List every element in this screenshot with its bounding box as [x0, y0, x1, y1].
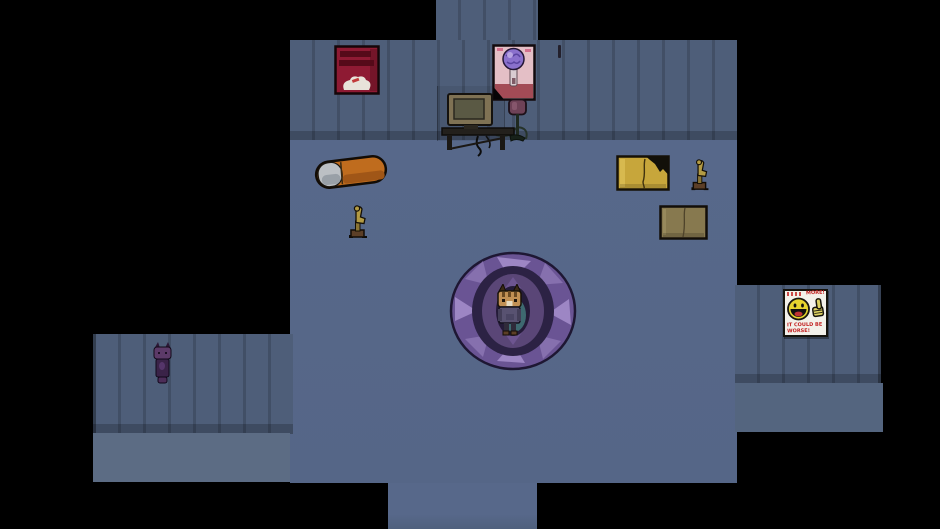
- yellow-table-art: [616, 155, 670, 191]
- right-wing-floor: [735, 383, 883, 432]
- floor-lamp-art: [505, 98, 529, 142]
- chair-right-art: [686, 158, 712, 192]
- thumbs-up-icon: [811, 298, 823, 316]
- scribble-text: [787, 292, 801, 296]
- red-poster[interactable]: [334, 45, 380, 95]
- player-character-art: [494, 284, 525, 336]
- chair-left[interactable]: [344, 204, 370, 240]
- chair-right[interactable]: [686, 158, 712, 192]
- red-poster-art: [334, 45, 380, 95]
- left-wing-floor: [93, 433, 290, 482]
- yellow-table[interactable]: [616, 155, 670, 191]
- chair-left-art: [344, 204, 370, 240]
- brown-table-art: [659, 205, 708, 240]
- floor-lamp[interactable]: [505, 98, 529, 142]
- smiley-poster[interactable]: MORE! IT COULD BE WORSE!: [783, 289, 828, 337]
- smiley-poster-bottom-text: IT COULD BE WORSE!: [787, 323, 825, 335]
- brown-table[interactable]: [659, 205, 708, 240]
- bottom-corridor-floor: [388, 483, 537, 529]
- wall-mark: [558, 45, 561, 58]
- game-viewport[interactable]: MORE! IT COULD BE WORSE!: [0, 0, 940, 529]
- top-corridor-wall: [436, 0, 538, 44]
- smiley-face-art: [786, 297, 826, 322]
- player-character[interactable]: [494, 284, 525, 336]
- npc-purple-cat-art: [152, 342, 173, 385]
- left-wing-wall: [93, 334, 293, 434]
- smiley-poster-top-text: MORE!: [806, 291, 825, 297]
- npc-purple-cat[interactable]: [152, 342, 173, 385]
